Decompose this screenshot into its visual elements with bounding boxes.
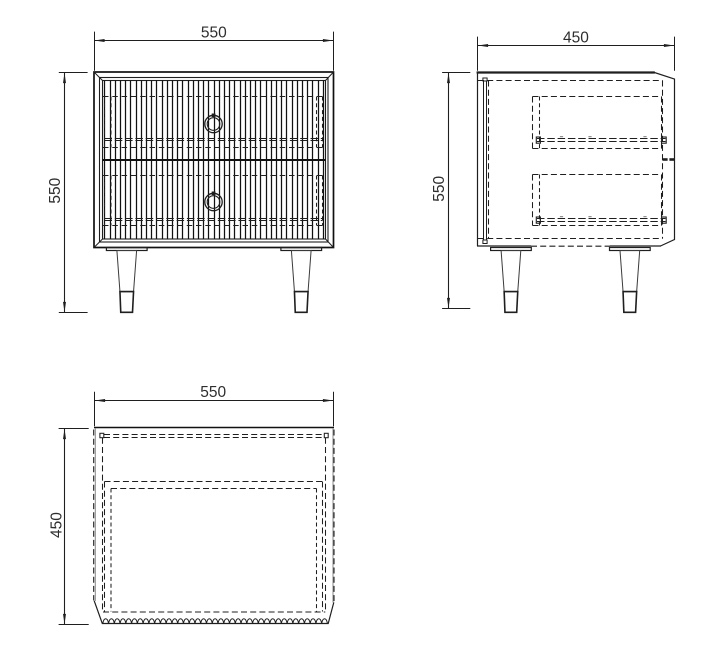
svg-text:550: 550 [200,384,226,401]
svg-text:450: 450 [563,30,589,47]
svg-text:550: 550 [431,175,448,201]
svg-text:550: 550 [201,24,227,41]
svg-text:550: 550 [47,177,64,203]
svg-text:450: 450 [49,512,66,538]
